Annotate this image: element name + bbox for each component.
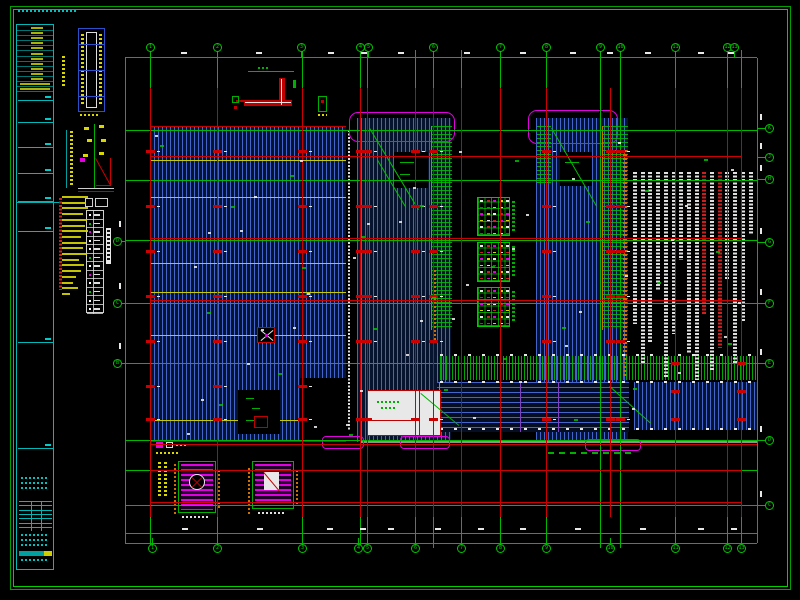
detail-2-ground [78, 191, 114, 192]
annotation-speck [314, 426, 317, 428]
beam-marker-tag [440, 296, 443, 297]
beam-marker-tag [224, 296, 227, 297]
grid-bubble-stub [121, 303, 126, 304]
beam-marker-tag [309, 151, 312, 152]
left-notes-line [62, 259, 79, 261]
schedule-cell-text [506, 207, 509, 209]
legend-symbol [89, 274, 91, 276]
dim-text [760, 491, 762, 497]
dim-text [327, 528, 333, 530]
detail-key-white [166, 442, 173, 448]
top-detail-L-inner [245, 102, 291, 103]
grid-bubble-stub [415, 538, 416, 544]
notes-column [679, 172, 683, 260]
grid-bubble: 2 [213, 544, 222, 553]
dim-text [645, 52, 651, 54]
band-tick [706, 354, 709, 356]
annotation-speck [512, 248, 515, 250]
dim-text [119, 283, 121, 289]
schedule-cell-text [493, 213, 496, 215]
beam-marker-tag [627, 251, 630, 252]
detail-leader-orange [248, 468, 250, 514]
annotation-speck [367, 223, 370, 225]
grid-bubble: 4 [354, 544, 363, 553]
beam-marker [213, 385, 222, 388]
dim-text [257, 528, 263, 530]
slab-a-opening-node [265, 334, 268, 337]
grid-bubble-stub [546, 52, 547, 58]
left-notes-line [62, 293, 70, 295]
dim-text [760, 349, 762, 355]
detail-leader-orange [296, 470, 298, 506]
detail-2-node [80, 158, 85, 162]
legend-table-row [87, 305, 103, 314]
beam-marker-tag [157, 386, 160, 387]
annotation-speck [194, 266, 197, 268]
band-tick [664, 428, 667, 430]
dim-text [520, 52, 526, 54]
column-detail-1-core [189, 474, 205, 490]
schedule-cell-text [493, 271, 496, 273]
beam-marker [298, 385, 307, 388]
grid-line-horizontal-green [125, 180, 757, 181]
notes-column [687, 172, 691, 354]
grid-bubble: J [765, 153, 774, 162]
beam-marker-tag [374, 206, 377, 207]
notes-column [710, 172, 714, 370]
band-tick [622, 354, 625, 356]
dim-line-top [125, 57, 757, 58]
column-detail-1-caption [182, 516, 208, 518]
grid-bubble: K [765, 124, 774, 133]
beam-marker [363, 250, 372, 253]
band-tick [580, 381, 583, 383]
legend-text [94, 231, 100, 233]
legend-header-box [95, 198, 108, 207]
grid-bubble: 9 [542, 544, 551, 553]
beam-marker [429, 250, 438, 253]
schedule-cell-text [480, 220, 483, 222]
schedule-table-label [512, 246, 515, 276]
beam-marker [616, 250, 625, 253]
grid-bubble-stub [727, 538, 728, 544]
grid-line-horizontal-green [125, 440, 757, 441]
schedule-cell-text [487, 290, 490, 292]
legend-table-row [87, 297, 103, 306]
schedule-cell-text [506, 297, 509, 299]
beam-marker [146, 418, 155, 421]
annotation-speck [724, 336, 727, 338]
grid-bubble: 13 [737, 544, 746, 553]
detail-2-leader [66, 130, 67, 188]
beam-marker-tag [224, 419, 227, 420]
plan-bottom-edge-red [150, 444, 757, 445]
schedule-cell-text [487, 200, 490, 202]
grid-bubble-stub [758, 505, 765, 506]
legend-table-row [87, 271, 103, 280]
detail-2-base [78, 188, 114, 189]
band-tick [538, 428, 541, 430]
band-tick [482, 354, 485, 356]
band-tick [454, 428, 457, 430]
band-tick [636, 354, 639, 356]
beam-marker [429, 205, 438, 208]
grid-bubble-stub [758, 363, 765, 364]
schedule-cell-text [487, 271, 490, 273]
beam-marker-tag [422, 251, 425, 252]
grid-bubble: 3 [297, 43, 306, 52]
schedule-table [477, 242, 510, 282]
slab-a-stair-detail [238, 390, 280, 434]
beam-marker [737, 362, 746, 365]
left-notes-line [62, 230, 88, 232]
legend-side-label [106, 228, 111, 264]
annotation-speck [155, 135, 158, 137]
schedule-cell-text [493, 316, 496, 318]
left-notes-line [62, 282, 73, 284]
grid-line-vertical-red [675, 88, 676, 517]
beam-marker [298, 340, 307, 343]
schedule-cell-text [487, 233, 490, 235]
detail-2-flag [99, 152, 104, 155]
plan-layer: 1234567891011121312345678910111213DCBKJH… [0, 0, 800, 600]
detail-1-line [79, 44, 104, 45]
band-tick [566, 354, 569, 356]
band-tick [524, 381, 527, 383]
legend-text [94, 240, 100, 242]
slab-b-void-mark [400, 174, 410, 175]
grid-bubble: 10 [616, 43, 625, 52]
detail-2-tri-h [96, 185, 111, 186]
beam-marker-tag [440, 251, 443, 252]
notes-column [718, 172, 722, 348]
schedule-cell-text [487, 297, 490, 299]
schedule-cell-text [506, 245, 509, 247]
slab-b-void [394, 152, 428, 188]
legend-table-divider [93, 211, 94, 314]
schedule-table-label [512, 201, 515, 231]
grid-bubble-stub [758, 179, 765, 180]
grid-bubble: 5 [364, 43, 373, 52]
band-tick [678, 428, 681, 430]
grid-bubble-stub [500, 538, 501, 544]
beam-marker [363, 205, 372, 208]
grid-bubble: 11 [671, 544, 680, 553]
beam-marker-tag [374, 419, 377, 420]
left-notes-line [62, 242, 86, 244]
dim-text [478, 528, 484, 530]
schedule-table-label [512, 291, 515, 321]
legend-text [94, 257, 100, 259]
grid-line-horizontal-green [125, 303, 757, 304]
grid-bubble: 1 [146, 43, 155, 52]
schedule-cell-text [480, 200, 483, 202]
beam-marker [363, 418, 372, 421]
detail-label-col [158, 462, 161, 496]
left-notes-line [62, 207, 88, 209]
beam-marker-tag [440, 341, 443, 342]
beam-marker-tag [627, 151, 630, 152]
band-tick [720, 428, 723, 430]
beam-marker-tag [440, 151, 443, 152]
band-tick [622, 428, 625, 430]
beam-marker [606, 340, 615, 343]
detail-2-flag [99, 125, 104, 128]
dim-text [760, 228, 762, 234]
schedule-cell-text [506, 310, 509, 312]
band-tick [580, 428, 583, 430]
band-tick [706, 381, 709, 383]
annotation-speck [632, 408, 635, 410]
detail-2-flag [87, 139, 92, 142]
legend-side-label-text [107, 230, 110, 262]
detail-2-flag [84, 127, 89, 130]
beam-marker [616, 295, 625, 298]
beam-marker-tag [224, 251, 227, 252]
schedule-cell-text [506, 323, 509, 325]
schedule-cell-text [480, 316, 483, 318]
annotation-speck [738, 302, 741, 304]
dim-text [181, 52, 187, 54]
notes-column [702, 172, 706, 314]
schedule-cell-text [493, 245, 496, 247]
grid-bubble-stub [217, 52, 218, 58]
annotation-speck [406, 354, 409, 356]
schedule-cell-text [487, 316, 490, 318]
grid-line-horizontal-green [125, 505, 757, 506]
beam-marker [606, 250, 615, 253]
grid-bubble-stub [734, 52, 735, 58]
dim-text [575, 528, 581, 530]
band-tick [720, 381, 723, 383]
grid-bubble: 11 [671, 43, 680, 52]
annotation-speck-green [361, 236, 365, 238]
band-tick [454, 381, 457, 383]
legend-table-row [87, 228, 103, 237]
annotation-speck [187, 433, 190, 435]
schedule-cell-text [487, 265, 490, 267]
left-notes-line [62, 202, 86, 204]
grid-bubble-stub [301, 52, 302, 58]
schedule-cell-text [487, 220, 490, 222]
beam-marker-tag [309, 206, 312, 207]
section-tag-dot [321, 100, 324, 103]
schedule-cell-text [480, 271, 483, 273]
dim-text [728, 52, 734, 54]
schedule-cell-text [480, 310, 483, 312]
notes-column [695, 172, 699, 380]
band-tick [650, 381, 653, 383]
schedule-cell-text [480, 278, 483, 280]
grid-bubble-stub [675, 538, 676, 544]
grid-bubble: 12 [723, 544, 732, 553]
beam-marker-tag [553, 251, 556, 252]
band-tick [580, 354, 583, 356]
dim-text [520, 528, 526, 530]
band-tick [594, 354, 597, 356]
annotation-speck [579, 311, 582, 313]
band-tick [454, 354, 457, 356]
grid-bubble: H [765, 175, 774, 184]
beam-marker [363, 340, 372, 343]
schedule-cell-text [480, 226, 483, 228]
left-notes-line [62, 213, 83, 215]
beam-marker-tag [309, 296, 312, 297]
beam-marker-tag [422, 151, 425, 152]
schedule-cell-text [506, 213, 509, 215]
legend-table-row [87, 279, 103, 288]
legend-table-row [87, 254, 103, 263]
grid-bubble: 10 [606, 544, 615, 553]
beam-marker-tag [157, 151, 160, 152]
grid-bubble-stub [152, 538, 153, 544]
band-tick [496, 428, 499, 430]
grid-line-vertical-red [500, 88, 501, 517]
beam-marker-tag [224, 341, 227, 342]
dim-text [760, 165, 762, 171]
dim-text [435, 528, 441, 530]
grid-bubble-stub [150, 52, 151, 58]
schedule-cell-text [493, 297, 496, 299]
grid-bubble-stub [500, 52, 501, 58]
schedule-cell-text [493, 323, 496, 325]
band-green-tick [559, 452, 565, 454]
annotation-speck [254, 196, 257, 198]
detail-label-vertical [62, 56, 65, 86]
grid-bubble: 6 [429, 43, 438, 52]
notes-column [656, 172, 660, 290]
band-purple-line [558, 382, 559, 432]
slab-a-yellow-beam [150, 292, 346, 293]
schedule-cell-text [487, 226, 490, 228]
beam-marker [146, 250, 155, 253]
band-tick [594, 428, 597, 430]
band-tick [748, 381, 751, 383]
beam-marker [542, 340, 551, 343]
dim-text [464, 52, 470, 54]
schedule-cell-text [506, 226, 509, 228]
beam-marker [213, 295, 222, 298]
detail-1-line [79, 96, 104, 97]
beam-marker [411, 250, 420, 253]
grid-bubble: G [765, 238, 774, 247]
schedule-cell-text [506, 290, 509, 292]
beam-marker [616, 418, 625, 421]
annotation-speck-green [574, 419, 578, 421]
annotation-speck [261, 329, 264, 331]
beam-marker-tag [627, 419, 630, 420]
detail-2-flag [83, 154, 88, 157]
annotation-speck [240, 230, 243, 232]
annotation-speck [346, 424, 349, 426]
schedule-cell-text [480, 265, 483, 267]
beam-marker [146, 385, 155, 388]
band-tick [552, 354, 555, 356]
grid-bubble: 2 [213, 43, 222, 52]
dim-text [119, 343, 121, 349]
stair-box-text [381, 407, 397, 409]
band-tick [482, 381, 485, 383]
schedule-cell-text [506, 278, 509, 280]
beam-marker-tag [422, 419, 425, 420]
slab-a-opening [257, 327, 275, 343]
schedule-cell-text [506, 316, 509, 318]
band-green-tick [625, 452, 631, 454]
dim-text [328, 52, 334, 54]
grid-bubble: E [765, 359, 774, 368]
detail-leader-orange [218, 470, 220, 510]
beam-marker [213, 418, 222, 421]
beam-marker [411, 418, 420, 421]
beam-marker-tag [553, 296, 556, 297]
grid-bubble: 7 [496, 43, 505, 52]
legend-symbol [89, 282, 91, 284]
band-tick [636, 381, 639, 383]
beam-marker-tag [374, 251, 377, 252]
schedule-cell-text [493, 290, 496, 292]
stair-box [367, 390, 441, 436]
band-purple-line [520, 382, 521, 432]
cad-sheet: 1234567891011121312345678910111213DCBKJH… [0, 0, 800, 600]
schedule-cell-text [480, 252, 483, 254]
beam-marker-tag [553, 419, 556, 420]
beam-marker [146, 150, 155, 153]
legend-symbol [89, 231, 91, 233]
beam-marker [298, 418, 307, 421]
dim-line-bottom [125, 533, 757, 534]
legend-table-row [87, 237, 103, 246]
detail-label-col [164, 462, 167, 496]
beam-marker-tag [224, 206, 227, 207]
beam-marker-tag [224, 151, 227, 152]
stair-box-divider [419, 391, 420, 435]
annotation-speck-green [219, 404, 223, 406]
beam-marker-tag [440, 419, 443, 420]
grid-bubble-stub [367, 538, 368, 544]
beam-marker [542, 418, 551, 421]
grid-bubble: D [765, 436, 774, 445]
band-tick [482, 428, 485, 430]
band-green-tick [548, 452, 554, 454]
dim-text [388, 528, 394, 530]
schedule-cell-text [506, 233, 509, 235]
band-tick [664, 381, 667, 383]
annotation-speck [413, 187, 416, 189]
annotation-speck [399, 221, 402, 223]
beam-marker [146, 205, 155, 208]
annotation-speck-green [586, 221, 590, 223]
annotation-speck [572, 178, 575, 180]
beam-marker-tag [553, 151, 556, 152]
band-tick [692, 381, 695, 383]
annotation-speck-green [562, 327, 566, 329]
dim-text [361, 52, 367, 54]
notes-column [641, 172, 645, 364]
top-detail-node [232, 96, 239, 103]
dim-text [760, 143, 762, 149]
band-tick [748, 428, 751, 430]
legend-symbol [89, 300, 91, 302]
beam-marker [606, 295, 615, 298]
slab-a-yellow-beam [150, 335, 346, 336]
left-notes-line [62, 225, 85, 227]
legend-text [94, 265, 100, 267]
dim-text [398, 52, 404, 54]
annotation-speck-green [716, 251, 720, 253]
band-tick [524, 354, 527, 356]
band-tick [468, 428, 471, 430]
annotation-speck-green [444, 389, 448, 391]
